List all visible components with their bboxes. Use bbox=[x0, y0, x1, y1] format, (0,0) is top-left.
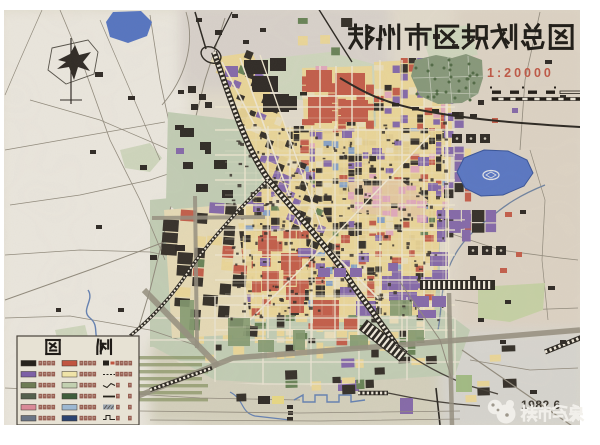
svg-text:1:20000: 1:20000 bbox=[487, 66, 554, 80]
